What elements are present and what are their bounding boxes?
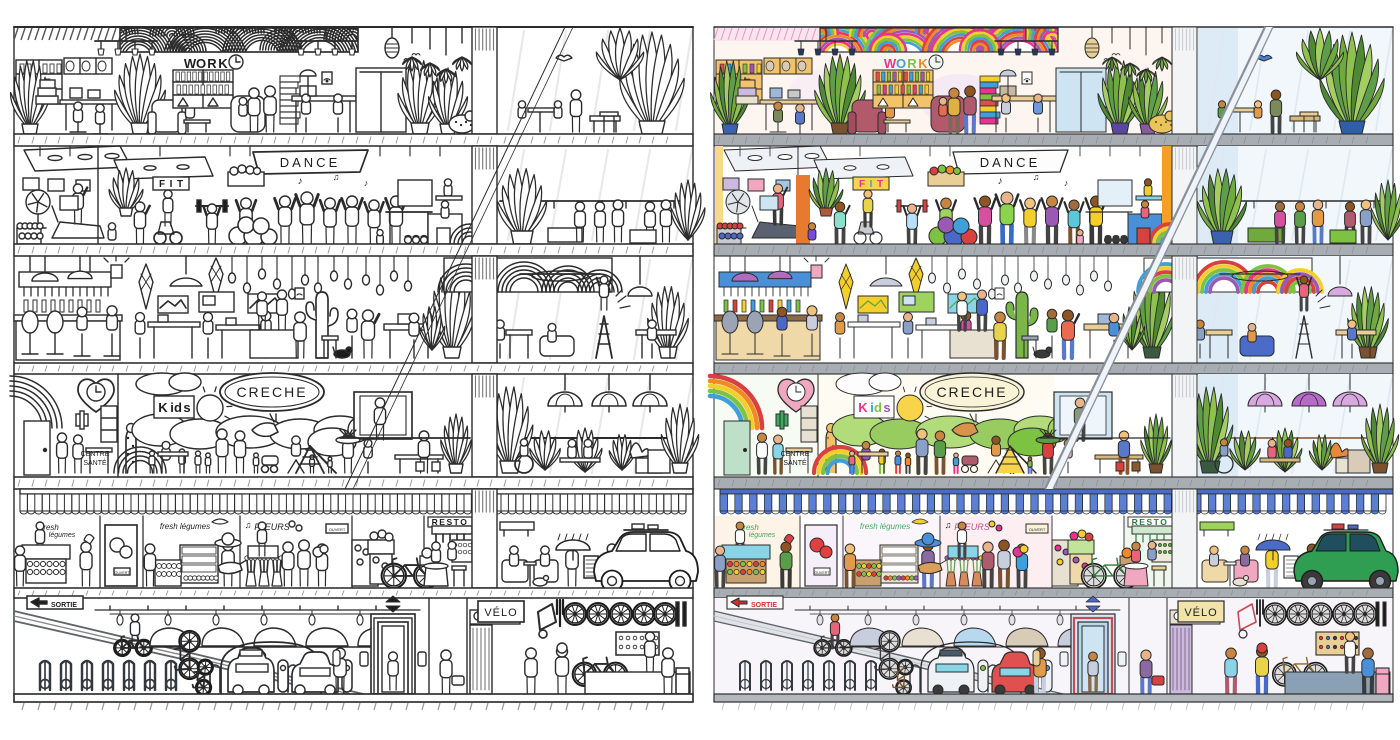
svg-text:VÉLO: VÉLO [1184,606,1217,619]
svg-text:I: I [170,179,173,190]
svg-text:K: K [158,400,168,415]
svg-text:CENTRE: CENTRE [781,451,810,458]
svg-text:s: s [883,400,890,415]
svg-text:♫: ♫ [333,172,340,182]
svg-text:K: K [858,400,868,415]
svg-text:♪: ♪ [298,176,303,187]
svg-text:s: s [183,400,190,415]
svg-text:SANTÉ: SANTÉ [83,458,107,467]
svg-text:OUVERT: OUVERT [815,571,831,575]
svg-text:OUVERT: OUVERT [1029,527,1046,532]
svg-text:OUVERT: OUVERT [115,571,131,575]
svg-text:DANCE: DANCE [280,155,341,170]
svg-text:SORTIE: SORTIE [751,602,777,609]
svg-text:F: F [159,179,165,190]
svg-text:d: d [874,400,882,415]
svg-text:fresh légumes: fresh légumes [160,522,210,531]
svg-text:R: R [907,56,917,71]
svg-text:I: I [870,179,873,190]
svg-text:♫: ♫ [1033,172,1040,182]
svg-text:O: O [896,56,906,71]
svg-text:♪: ♪ [364,178,369,188]
svg-text:♫: ♫ [245,520,252,530]
svg-text:W: W [184,56,197,71]
svg-text:DANCE: DANCE [980,155,1041,170]
svg-text:W: W [884,56,897,71]
svg-text:T: T [177,179,183,190]
svg-text:K: K [918,56,928,71]
svg-text:d: d [174,400,182,415]
svg-text:K: K [218,56,228,71]
svg-text:légumes: légumes [49,532,76,539]
svg-text:OUVERT: OUVERT [329,527,346,532]
svg-text:♫: ♫ [945,520,952,530]
svg-text:SANTÉ: SANTÉ [783,458,807,467]
svg-text:R: R [207,56,217,71]
svg-text:F: F [859,179,865,190]
svg-text:♪: ♪ [1064,178,1069,188]
svg-text:♪: ♪ [998,176,1003,187]
svg-text:CRECHE: CRECHE [936,384,1007,400]
svg-text:fresh légumes: fresh légumes [860,522,910,531]
svg-text:légumes: légumes [749,532,776,539]
svg-text:VÉLO: VÉLO [484,606,517,619]
svg-text:CENTRE: CENTRE [81,451,110,458]
svg-text:CRECHE: CRECHE [236,384,307,400]
svg-text:SORTIE: SORTIE [51,602,77,609]
svg-text:O: O [196,56,206,71]
svg-text:T: T [877,179,883,190]
